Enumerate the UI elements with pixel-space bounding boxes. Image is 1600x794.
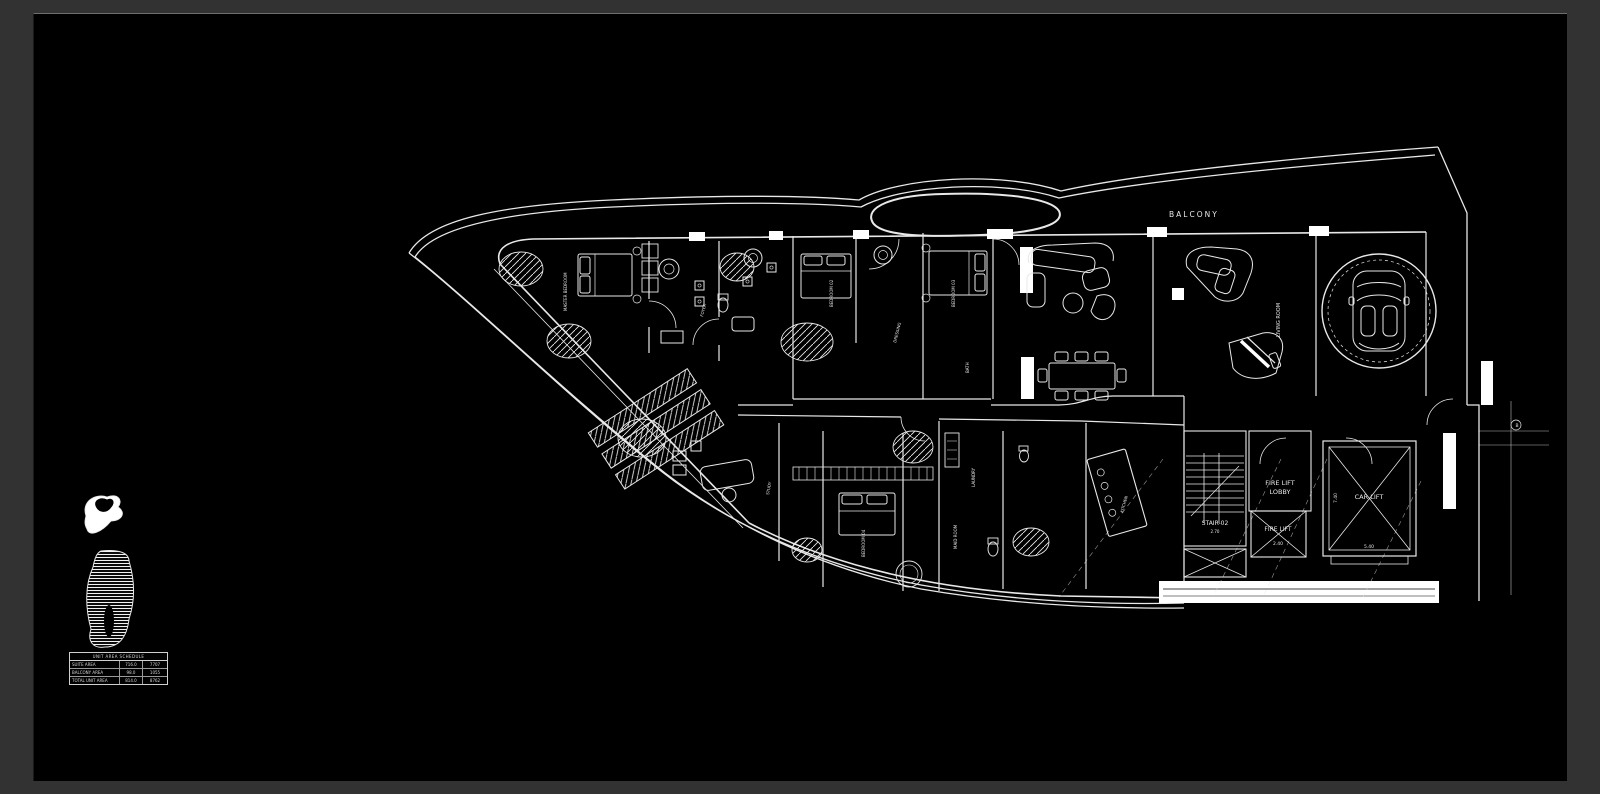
fire-lift-dim: 2.40 xyxy=(1273,541,1283,547)
area-table: UNIT AREA SCHEDULE SUITE AREA 716.0 7707… xyxy=(69,652,168,685)
keyplan-blob xyxy=(85,496,122,533)
keyplan-tower xyxy=(87,550,134,647)
dining-table xyxy=(1038,352,1126,400)
area-table-title: UNIT AREA SCHEDULE xyxy=(70,653,167,661)
car-lift-width-dim: 5.40 xyxy=(1364,544,1374,550)
room-label: BEDROOM 03 xyxy=(951,279,956,307)
floor-plan-svg: BALCONY LIVING ROOM FIRE LIFT LOBBY FIRE… xyxy=(34,14,1567,781)
area-row-sqm: 98.0 xyxy=(120,669,143,676)
projection-lines xyxy=(1059,459,1421,597)
fire-lift-lobby-label-2: LOBBY xyxy=(1269,488,1290,496)
table-row: BALCONY AREA 98.0 1055 xyxy=(70,669,167,677)
room-label: STUDY xyxy=(765,481,772,495)
area-row-label: BALCONY AREA xyxy=(70,669,120,676)
fire-lift-label: FIRE LIFT xyxy=(1264,526,1292,533)
table-row: SUITE AREA 716.0 7707 xyxy=(70,661,167,669)
area-row-sqft: 7707 xyxy=(143,661,167,668)
room-label: FOYER xyxy=(699,303,707,317)
car-symbol xyxy=(1349,271,1409,351)
living-room-label: LIVING ROOM xyxy=(1276,303,1282,337)
grid-lines xyxy=(1479,401,1549,595)
table-row: TOTAL UNIT AREA 814.0 8762 xyxy=(70,677,167,684)
area-row-sqm: 716.0 xyxy=(120,661,143,668)
room-label: MAID ROOM xyxy=(953,524,958,549)
room-label: DRESSING xyxy=(892,322,902,343)
columns xyxy=(499,252,1049,562)
car-turntable xyxy=(1322,254,1436,368)
void-opening xyxy=(871,194,1060,236)
bed-2 xyxy=(801,254,851,298)
sofa-group-family xyxy=(1027,243,1115,320)
wardrobe xyxy=(793,467,933,480)
room-label: BATH xyxy=(965,362,970,373)
door-arcs xyxy=(649,239,1453,464)
room-label: MASTER BEDROOM xyxy=(563,272,568,311)
bed-master xyxy=(578,247,641,303)
area-row-label: SUITE AREA xyxy=(70,661,120,668)
sofa-group-formal xyxy=(1186,247,1252,301)
area-row-label: TOTAL UNIT AREA xyxy=(70,677,120,684)
room-label: BEDROOM 02 xyxy=(829,279,834,307)
bed-4 xyxy=(839,493,895,535)
stair-core xyxy=(1184,431,1246,577)
area-row-sqft: 8762 xyxy=(143,677,167,684)
kitchen-counter xyxy=(1087,449,1148,537)
balcony-outline xyxy=(409,147,1479,608)
car-lift-depth-dim: 7.40 xyxy=(1333,493,1339,503)
foyer-tables xyxy=(659,246,892,343)
area-row-sqft: 1055 xyxy=(143,669,167,676)
room-label: BEDROOM 04 xyxy=(861,529,866,557)
stair-dim: 2.70 xyxy=(1211,529,1220,534)
fire-lift-lobby-label-1: FIRE LIFT xyxy=(1265,479,1295,487)
app-frame: BALCONY LIVING ROOM FIRE LIFT LOBBY FIRE… xyxy=(0,0,1600,794)
service-band xyxy=(1159,581,1439,603)
room-label: LAUNDRY xyxy=(971,467,976,487)
plan-labels: BALCONY LIVING ROOM FIRE LIFT LOBBY FIRE… xyxy=(563,210,1519,557)
room-label: KITCHEN xyxy=(1119,495,1129,513)
area-row-sqm: 814.0 xyxy=(120,677,143,684)
balcony-label: BALCONY xyxy=(1169,210,1219,219)
car-lift-label: CAR LIFT xyxy=(1355,493,1384,501)
drawing-canvas[interactable]: BALCONY LIVING ROOM FIRE LIFT LOBBY FIRE… xyxy=(33,13,1567,781)
grid-bubble-label: B xyxy=(1515,423,1518,429)
stair-label: STAIR-02 xyxy=(1202,520,1229,527)
grand-piano xyxy=(1229,333,1283,379)
